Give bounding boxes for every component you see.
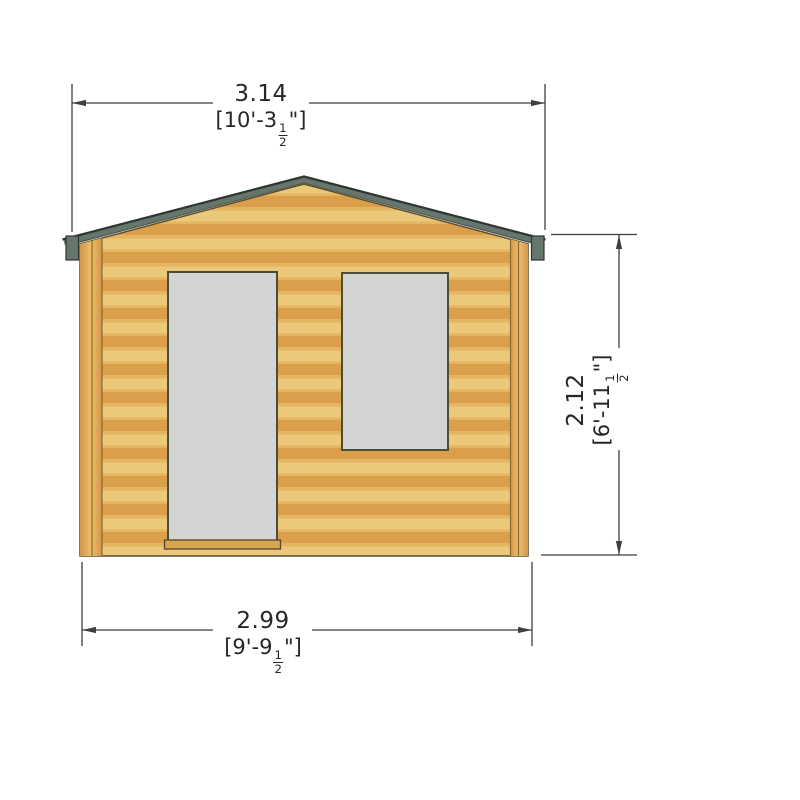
base-width-imperial: [9'-912"] xyxy=(224,635,302,675)
diagram-canvas xyxy=(0,0,800,800)
dimension-height-label: 2.12 [6'-1112"] xyxy=(564,355,630,446)
fraction: 12 xyxy=(278,122,287,148)
right-eave-flap xyxy=(532,236,545,260)
door-threshold xyxy=(165,540,281,549)
arrowhead-left-icon xyxy=(72,100,86,106)
imperial-suffix: "] xyxy=(289,108,307,132)
dimension-overall-width-label: 3.14 [10'-312"] xyxy=(216,82,307,148)
imperial-prefix: [9'-9 xyxy=(224,635,272,659)
fraction-numerator: 1 xyxy=(279,122,286,134)
imperial-suffix: "] xyxy=(284,635,302,659)
height-metric: 2.12 xyxy=(564,355,588,446)
arrowhead-right-icon xyxy=(518,627,532,633)
arrowhead-up-icon xyxy=(616,235,622,249)
dimension-base-width-label: 2.99 [9'-912"] xyxy=(224,609,302,675)
imperial-prefix: [6'-11 xyxy=(590,384,614,446)
height-imperial: [6'-1112"] xyxy=(590,355,630,446)
fraction-denominator: 2 xyxy=(273,662,282,675)
log-wall xyxy=(80,184,528,556)
imperial-prefix: [10'-3 xyxy=(216,108,278,132)
dimension-base-width-lines xyxy=(82,562,532,646)
imperial-suffix: "] xyxy=(590,355,614,373)
fraction-denominator: 2 xyxy=(278,135,287,148)
arrowhead-left-icon xyxy=(82,627,96,633)
base-width-metric: 2.99 xyxy=(224,609,302,633)
window xyxy=(342,273,448,450)
door xyxy=(168,272,277,541)
left-eave-flap xyxy=(66,236,79,260)
fraction-numerator: 1 xyxy=(604,374,616,381)
elevation-diagram: 3.14 [10'-312"] 2.99 [9'-912"] 2.12 [6'-… xyxy=(0,0,800,800)
fraction-numerator: 1 xyxy=(274,649,281,661)
overall-width-metric: 3.14 xyxy=(216,82,307,106)
fraction: 12 xyxy=(273,649,282,675)
fraction-denominator: 2 xyxy=(617,373,630,382)
fraction: 12 xyxy=(604,373,630,382)
overall-width-imperial: [10'-312"] xyxy=(216,108,307,148)
arrowhead-down-icon xyxy=(616,541,622,555)
arrowhead-right-icon xyxy=(531,100,545,106)
